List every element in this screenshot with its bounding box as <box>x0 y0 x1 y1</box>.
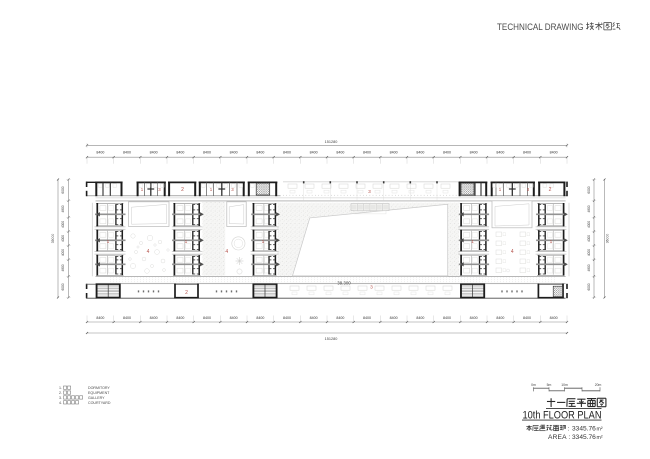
svg-text:4000: 4000 <box>61 249 65 256</box>
svg-text:8400: 8400 <box>96 316 104 320</box>
svg-text:DORMITORY: DORMITORY <box>88 386 110 390</box>
svg-text:COURTYARD: COURTYARD <box>88 401 111 405</box>
svg-text:8400: 8400 <box>230 316 238 320</box>
svg-text:8400: 8400 <box>416 316 424 320</box>
svg-text:8400: 8400 <box>363 316 371 320</box>
svg-text:8400: 8400 <box>256 316 264 320</box>
svg-text:TECHNICAL DRAWING: TECHNICAL DRAWING <box>497 22 584 33</box>
svg-text:8400: 8400 <box>256 151 264 155</box>
svg-text:4000: 4000 <box>61 221 65 228</box>
svg-text:151280: 151280 <box>325 337 338 341</box>
svg-text:4000: 4000 <box>587 249 591 256</box>
svg-text:1.: 1. <box>59 386 62 390</box>
svg-text:EQUIPMENT: EQUIPMENT <box>88 391 110 395</box>
svg-text:AREA :: AREA : <box>548 434 570 441</box>
svg-text:3345.76: 3345.76 <box>572 434 596 441</box>
svg-text:2: 2 <box>549 187 552 193</box>
svg-text:8400: 8400 <box>283 316 291 320</box>
svg-text:8400: 8400 <box>496 316 504 320</box>
svg-text:8400: 8400 <box>176 316 184 320</box>
svg-text:8400: 8400 <box>523 316 531 320</box>
svg-text:1: 1 <box>185 239 188 245</box>
svg-text:6000: 6000 <box>587 283 591 290</box>
svg-text:3: 3 <box>370 285 373 291</box>
svg-text:4000: 4000 <box>587 235 591 242</box>
svg-text:2: 2 <box>185 290 188 296</box>
svg-text:6000: 6000 <box>587 186 591 193</box>
svg-text:5m: 5m <box>547 383 552 387</box>
svg-text:39.300: 39.300 <box>337 281 351 286</box>
svg-text::: : <box>568 426 570 433</box>
svg-text:8400: 8400 <box>390 151 398 155</box>
svg-text:m²: m² <box>597 435 603 441</box>
svg-text:1: 1 <box>107 239 110 245</box>
svg-text:m²: m² <box>597 427 603 433</box>
svg-text:4800: 4800 <box>61 205 65 212</box>
svg-text:20m: 20m <box>595 383 602 387</box>
svg-text:39000: 39000 <box>51 234 55 244</box>
svg-text:8400: 8400 <box>523 151 531 155</box>
svg-text:8400: 8400 <box>176 151 184 155</box>
svg-text:4800: 4800 <box>587 264 591 271</box>
svg-text:10m: 10m <box>561 383 568 387</box>
svg-text:2: 2 <box>181 187 184 193</box>
svg-text:GALLERY: GALLERY <box>88 396 105 400</box>
svg-text:8400: 8400 <box>203 316 211 320</box>
svg-text:6000: 6000 <box>61 186 65 193</box>
svg-text:0m: 0m <box>531 383 536 387</box>
svg-text:8400: 8400 <box>230 151 238 155</box>
svg-text:1: 1 <box>262 239 265 245</box>
svg-text:4: 4 <box>511 249 514 255</box>
svg-text:8400: 8400 <box>390 316 398 320</box>
svg-text:3345.76: 3345.76 <box>572 426 596 433</box>
svg-text:8400: 8400 <box>283 151 291 155</box>
svg-text:8400: 8400 <box>123 316 131 320</box>
svg-text:8400: 8400 <box>443 316 451 320</box>
svg-text:3.: 3. <box>59 396 62 400</box>
svg-text:8400: 8400 <box>550 151 558 155</box>
svg-text:8400: 8400 <box>363 151 371 155</box>
svg-text:8400: 8400 <box>443 151 451 155</box>
svg-text:8400: 8400 <box>310 151 318 155</box>
svg-text:8400: 8400 <box>470 316 478 320</box>
svg-text:8400: 8400 <box>203 151 211 155</box>
svg-text:8400: 8400 <box>336 316 344 320</box>
svg-text:36000: 36000 <box>606 234 610 244</box>
svg-text:3: 3 <box>368 189 371 195</box>
svg-text:8400: 8400 <box>150 151 158 155</box>
svg-text:4800: 4800 <box>61 264 65 271</box>
svg-text:1: 1 <box>471 239 474 245</box>
svg-text:2.: 2. <box>59 391 62 395</box>
svg-text:1: 1 <box>550 239 553 245</box>
svg-text:8400: 8400 <box>496 151 504 155</box>
svg-text:6000: 6000 <box>61 283 65 290</box>
svg-text:8400: 8400 <box>336 151 344 155</box>
svg-text:4800: 4800 <box>587 205 591 212</box>
svg-text:8400: 8400 <box>470 151 478 155</box>
svg-text:4: 4 <box>147 249 150 255</box>
svg-text:8400: 8400 <box>416 151 424 155</box>
svg-text:8400: 8400 <box>310 316 318 320</box>
svg-text:4000: 4000 <box>587 221 591 228</box>
svg-text:8400: 8400 <box>96 151 104 155</box>
svg-text:8400: 8400 <box>150 316 158 320</box>
svg-text:4: 4 <box>225 249 228 255</box>
svg-text:4.: 4. <box>59 401 62 405</box>
svg-text:8400: 8400 <box>550 316 558 320</box>
svg-text:4000: 4000 <box>61 235 65 242</box>
svg-text:10th FLOOR PLAN: 10th FLOOR PLAN <box>523 409 602 421</box>
svg-text:8400: 8400 <box>123 151 131 155</box>
svg-text:151280: 151280 <box>325 140 338 144</box>
